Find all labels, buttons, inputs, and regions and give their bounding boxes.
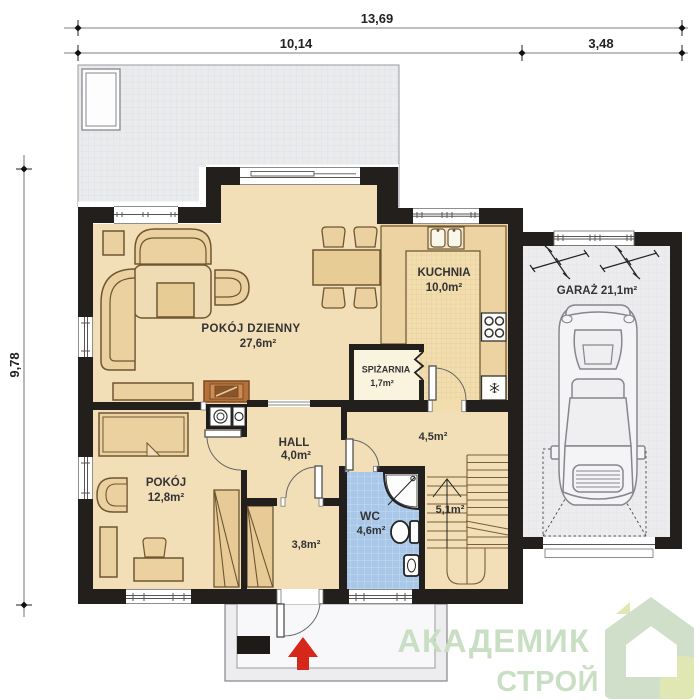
- svg-text:HALL: HALL: [279, 437, 310, 449]
- svg-text:10,0m²: 10,0m²: [426, 282, 463, 294]
- svg-text:KUCHNIA: KUCHNIA: [417, 267, 470, 279]
- svg-text:4,0m²: 4,0m²: [281, 450, 311, 462]
- svg-text:3,48: 3,48: [588, 36, 613, 51]
- svg-text:SPIŻARNIA: SPIŻARNIA: [362, 365, 411, 375]
- svg-text:POKÓJ: POKÓJ: [146, 476, 186, 489]
- svg-text:СТРОЙ: СТРОЙ: [496, 664, 599, 698]
- svg-text:GARAŻ 21,1m²: GARAŻ 21,1m²: [557, 284, 638, 297]
- svg-text:АКАДЕМИК: АКАДЕМИК: [397, 623, 590, 659]
- svg-text:POKÓJ DZIENNY: POKÓJ DZIENNY: [201, 322, 300, 335]
- svg-text:WC: WC: [360, 509, 380, 523]
- svg-text:4,5m²: 4,5m²: [419, 431, 448, 443]
- svg-text:9,78: 9,78: [7, 352, 22, 377]
- svg-text:5,1m²: 5,1m²: [436, 504, 465, 516]
- svg-text:13,69: 13,69: [361, 11, 394, 26]
- svg-text:12,8m²: 12,8m²: [148, 492, 185, 504]
- svg-text:27,6m²: 27,6m²: [240, 338, 277, 350]
- svg-text:10,14: 10,14: [280, 36, 313, 51]
- svg-text:1,7m²: 1,7m²: [370, 378, 394, 388]
- svg-text:4,6m²: 4,6m²: [357, 525, 386, 537]
- svg-text:3,8m²: 3,8m²: [292, 539, 321, 551]
